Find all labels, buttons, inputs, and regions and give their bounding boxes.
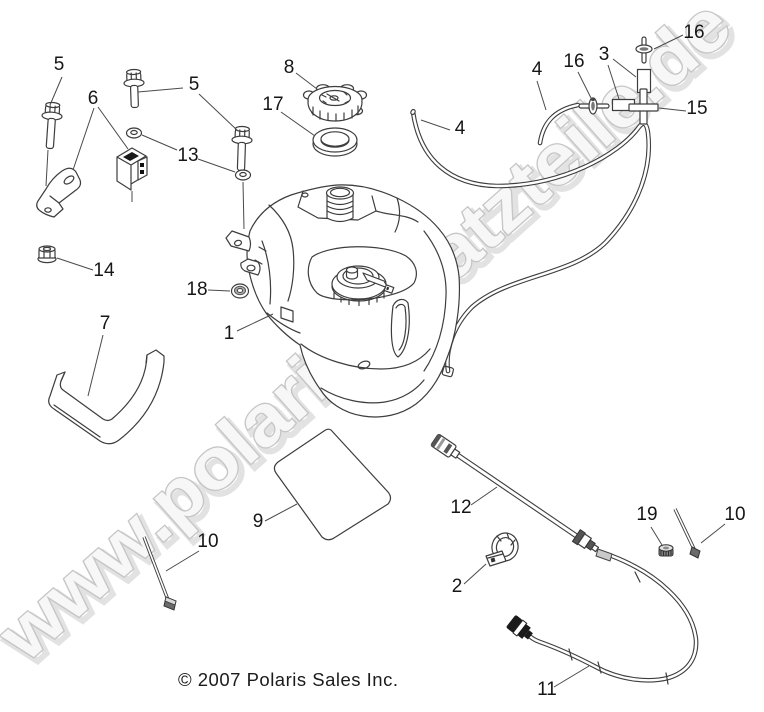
copyright-text: © 2007 Polaris Sales Inc. (178, 669, 399, 690)
callout-label-fuel-line: 12 (450, 497, 471, 518)
fuel-cap-drawing (304, 85, 367, 121)
heat-shield-drawing (49, 350, 164, 444)
grommet-drawing (232, 284, 249, 298)
filler-neck-drawing (327, 187, 354, 222)
bolt-axis-line (243, 182, 244, 229)
callout-label-mount-bracket: 6 (88, 88, 99, 109)
callout-label-pad-decal: 9 (253, 511, 264, 532)
fuel-hose-drawing (506, 549, 696, 684)
flange-bolt-drawing-b (124, 69, 145, 108)
callout-label-nut: 14 (93, 260, 115, 281)
flange-bolt-drawing-a (40, 102, 63, 149)
callout-label-vent-hose: 4 (455, 118, 466, 139)
callout-label-fuel-tank: 1 (224, 323, 235, 344)
fuel-line-drawing (431, 434, 601, 556)
bolt-axis-line (46, 150, 48, 186)
callout-label-screw: 10 (197, 531, 218, 552)
bracket-drawing-a (37, 168, 81, 217)
callout-label-cable-clamp: 2 (452, 576, 463, 597)
callout-label-fitting: 3 (599, 44, 610, 65)
callout-label-cap-nut: 19 (636, 504, 657, 525)
callout-label-flange-bolt: 5 (54, 54, 65, 75)
cap-nut-drawing (659, 545, 673, 556)
callout-label-clip: 16 (683, 22, 704, 43)
callout-label-cap-gasket: 17 (262, 94, 283, 115)
callout-label-clip: 16 (563, 51, 584, 72)
callout-label-flange-bolt: 5 (189, 74, 200, 95)
cable-clamp-drawing (486, 530, 521, 566)
washer-drawing-a (127, 128, 142, 138)
callout-label-cross-fitting: 15 (686, 98, 707, 119)
callout-label-screw: 10 (724, 504, 745, 525)
callout-label-washer: 13 (177, 145, 198, 166)
parts-diagram-page: www.polarisersatzteile.de www.polarisers… (0, 0, 764, 712)
screw-drawing-b (675, 509, 700, 558)
callout-label-heat-shield: 7 (100, 313, 111, 334)
callout-label-fuel-hose: 11 (537, 679, 557, 700)
nut-drawing (38, 246, 56, 263)
callout-label-grommet: 18 (186, 279, 207, 300)
bracket-drawing-b (117, 148, 147, 202)
gasket-drawing (313, 128, 357, 156)
callout-label-vent-hose: 4 (532, 59, 543, 80)
washer-drawing-b (236, 170, 251, 180)
callout-label-fuel-cap: 8 (284, 57, 295, 78)
flange-bolt-drawing-c (231, 126, 253, 171)
